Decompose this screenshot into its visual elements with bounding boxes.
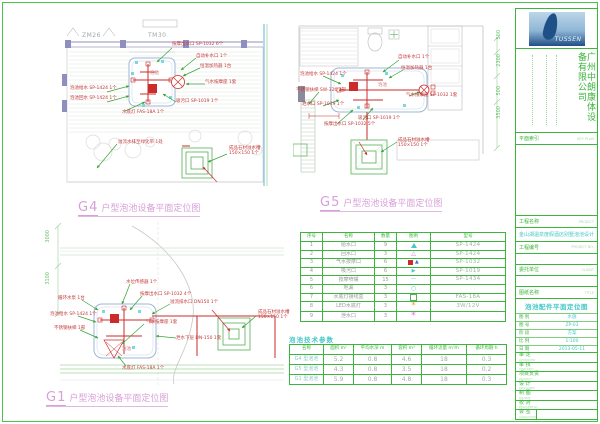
- annotation-label: 成品石材溢水槽 150×150 1个: [398, 138, 438, 148]
- g5-pool-label: 泡池: [378, 82, 387, 88]
- client-row: 委托单位CLIENT: [516, 264, 597, 276]
- company-info-line: [532, 55, 533, 125]
- equipment-table: 序号 名称 数量 图例 型号 1给水口9SP-1424 2回水口3SP-1424…: [300, 232, 506, 322]
- cyan-circle-icon: [411, 286, 416, 292]
- col-name: 名称: [323, 233, 375, 242]
- annotation-label: 吸污口 SP-1019 1个: [176, 99, 218, 104]
- drawing-title: 泡池配件平面定位图: [516, 298, 597, 313]
- title-block: TUSSEN 广州中朗康体设备有限公司 平面索引KEY PLAN 工程名称PRO…: [515, 8, 598, 420]
- green-square-icon: [410, 294, 417, 301]
- annotation-label: 按摩出水口 SP-1032 6个: [172, 42, 223, 47]
- g4-plan-drawing: [45, 14, 275, 199]
- g5-dim-2300: 2300: [497, 54, 502, 67]
- signature-row-approved: 审 定APPROVED: [516, 352, 597, 362]
- g4-plan-code: G4: [78, 200, 98, 216]
- g4-plan-title: G4户型泡池设备平面定位图: [78, 196, 200, 217]
- annotation-label: 自动补水口 1个: [398, 55, 429, 60]
- key-plan-row: 平面索引KEY PLAN: [516, 132, 597, 144]
- annotation-label: 成品石材溢水槽 150×150 1个: [258, 310, 298, 320]
- params-table-title: 泡池技术参数: [289, 334, 334, 344]
- signature-row-countersign: 会 签SIGNATURE: [516, 409, 597, 419]
- magenta-star-icon: [411, 312, 416, 321]
- signature-rows: 审 定APPROVED 审 核CHECKED 项目负责PROJECT 设 计DE…: [516, 352, 597, 419]
- col-legend: 图例: [397, 233, 431, 242]
- annotation-label: 泡池给水 SP-1424 1个: [50, 312, 97, 317]
- annotation-label: 溢流排水口 DN150 1个: [170, 300, 218, 305]
- annotation-label: 泄水口 SP-1019 1个: [302, 102, 344, 107]
- annotation-label: 不锈钢扶梯 1部: [54, 326, 85, 331]
- g5-dim-500b: 500: [497, 86, 502, 96]
- col-no: 序号: [301, 233, 323, 242]
- field-row-number: 图 号ZP-03: [516, 321, 597, 329]
- table-header-row: 名称面积 m²平均水深 m容积 m³循环流量 m³/h循环周期 h: [290, 345, 507, 355]
- project-label-row: 工程名称PROJECT: [516, 215, 597, 227]
- table-row: 2回水口3SP-1424: [301, 250, 506, 259]
- g1-dim-3000: 3000: [46, 230, 51, 243]
- drawing-sheet: ZM26 TM30 泡池 泡池给水 SP-1424 1个 泡池回水 SP-142…: [0, 0, 600, 424]
- field-row-scale: 比 例1:100: [516, 337, 597, 345]
- g4-wall-label-tm30: TM30: [148, 32, 166, 39]
- annotation-label: 气水按摩座 SP-1032 1套: [406, 93, 457, 98]
- table-row: G5 型泡池4.30.83.5180.2: [290, 365, 507, 375]
- annotation-label: 泡池回水 SP-1424 1个: [70, 96, 117, 101]
- col-qty: 数量: [375, 233, 397, 242]
- red-square-icon: [408, 260, 413, 265]
- g5-dim-3500: 3500: [497, 106, 502, 119]
- annotation-label: 恒温加热器 1台: [401, 66, 432, 71]
- annotation-label: 气水按摩座 1套: [205, 80, 236, 85]
- col-model: 型号: [431, 233, 506, 242]
- annotation-label: 泡池给水 SP-1424 1个: [70, 86, 117, 91]
- g1-plan-title: G1户型泡池设备平面定位图: [46, 386, 168, 407]
- table-row: 5按摩喷嘴15SP-1434: [301, 276, 506, 285]
- cyan-triangle-icon: [411, 243, 417, 248]
- project-no-value-box: [516, 253, 597, 264]
- table-row: 3气水按摩口6 SP-1032: [301, 259, 506, 268]
- g1-plan-drawing: [42, 218, 292, 390]
- table-row: G4 型泡池5.20.84.6180.3: [290, 355, 507, 365]
- blue-triangle-icon: [415, 260, 419, 265]
- key-plan-box: [516, 144, 597, 215]
- table-row: 1给水口9SP-1424: [301, 242, 506, 251]
- annotation-label: 溢流水排至绿化带 1处: [118, 140, 163, 145]
- g5-dim-500a: 500: [497, 30, 502, 40]
- company-info-line: [546, 55, 547, 125]
- g1-plan-code: G1: [46, 390, 66, 406]
- annotation-label: 不锈钢扶梯 SW-326 1部: [296, 88, 346, 93]
- table-row: 6地漏3: [301, 284, 506, 293]
- table-row: 9泄水口3: [301, 312, 506, 322]
- g1-dim-3100: 3100: [46, 272, 51, 285]
- table-header-row: 序号 名称 数量 图例 型号: [301, 233, 506, 242]
- orange-star-icon: [411, 302, 416, 311]
- annotation-label: 按摩出水口 SP-1032 5个: [324, 122, 375, 127]
- table-row: 4吸污口6SP-1019: [301, 267, 506, 276]
- project-no-row: 工程编号PROJECT NO.: [516, 241, 597, 253]
- company-logo: TUSSEN: [529, 12, 585, 46]
- cyan-dash-icon: [411, 277, 416, 282]
- company-name: 广州中朗康体设备有限公司: [576, 52, 594, 132]
- table-row: G1 型泡池5.90.84.8180.3: [290, 375, 507, 385]
- project-name: 金山湖温泉度假酒店别墅泡池设计: [516, 227, 597, 241]
- annotation-label: 泡池给水 SP-1424 1个: [300, 72, 347, 77]
- annotation-label: 成品石材溢水槽 150×150 1个: [229, 146, 269, 156]
- logo-row: TUSSEN: [516, 9, 597, 48]
- g4-pool-label: 泡池: [150, 70, 159, 76]
- annotation-label: 气水按摩座 1套: [146, 320, 177, 325]
- annotation-label: 按摩出水口 SP-1032 4个: [140, 292, 191, 297]
- signature-row-project: 项目负责PROJECT: [516, 371, 597, 381]
- annotation-label: 泄水下层 DN-150 1套: [176, 336, 221, 341]
- cyan-flag-icon: [412, 269, 416, 274]
- client-value-box: [516, 275, 597, 286]
- magenta-triangle-icon: [411, 251, 416, 257]
- g1-pool-label: 泡池: [122, 346, 131, 352]
- annotation-label: 自动补水口 1个: [196, 54, 227, 59]
- company-info-line: [556, 55, 557, 125]
- table-row: 8LED水底灯33W/12V: [301, 302, 506, 312]
- annotation-label: 恒温加热器 1台: [200, 64, 231, 69]
- annotation-label: 水底灯 FAS-18A 1个: [122, 110, 164, 115]
- table-row: 7水底灯接线盒3FAS-18A: [301, 293, 506, 302]
- drawing-title-label-row: 图纸名称TITLE: [516, 286, 597, 298]
- company-name-section: 广州中朗康体设备有限公司: [516, 48, 597, 132]
- params-table: 名称面积 m²平均水深 m容积 m³循环流量 m³/h循环周期 h G4 型泡池…: [289, 344, 507, 385]
- countersign-cell: [536, 410, 597, 419]
- logo-brand-text: TUSSEN: [555, 36, 582, 43]
- g5-plan-title: G5户型泡池设备平面定位图: [320, 191, 442, 212]
- annotation-label: 水位传感器 1个: [126, 280, 157, 285]
- g4-wall-label-zm26: ZM26: [82, 32, 101, 39]
- signature-row-drawn: 制 图DRAWN: [516, 390, 597, 400]
- field-row-category: 图 别水施: [516, 313, 597, 321]
- field-row-stage: 阶 段方案: [516, 329, 597, 337]
- g5-plan-code: G5: [320, 195, 340, 211]
- annotation-label: 吸污口 SP-1019 1个: [358, 116, 400, 121]
- annotation-label: 水底灯 FAS-18A 1个: [122, 366, 164, 371]
- annotation-label: 循环水泵 1台: [58, 296, 85, 301]
